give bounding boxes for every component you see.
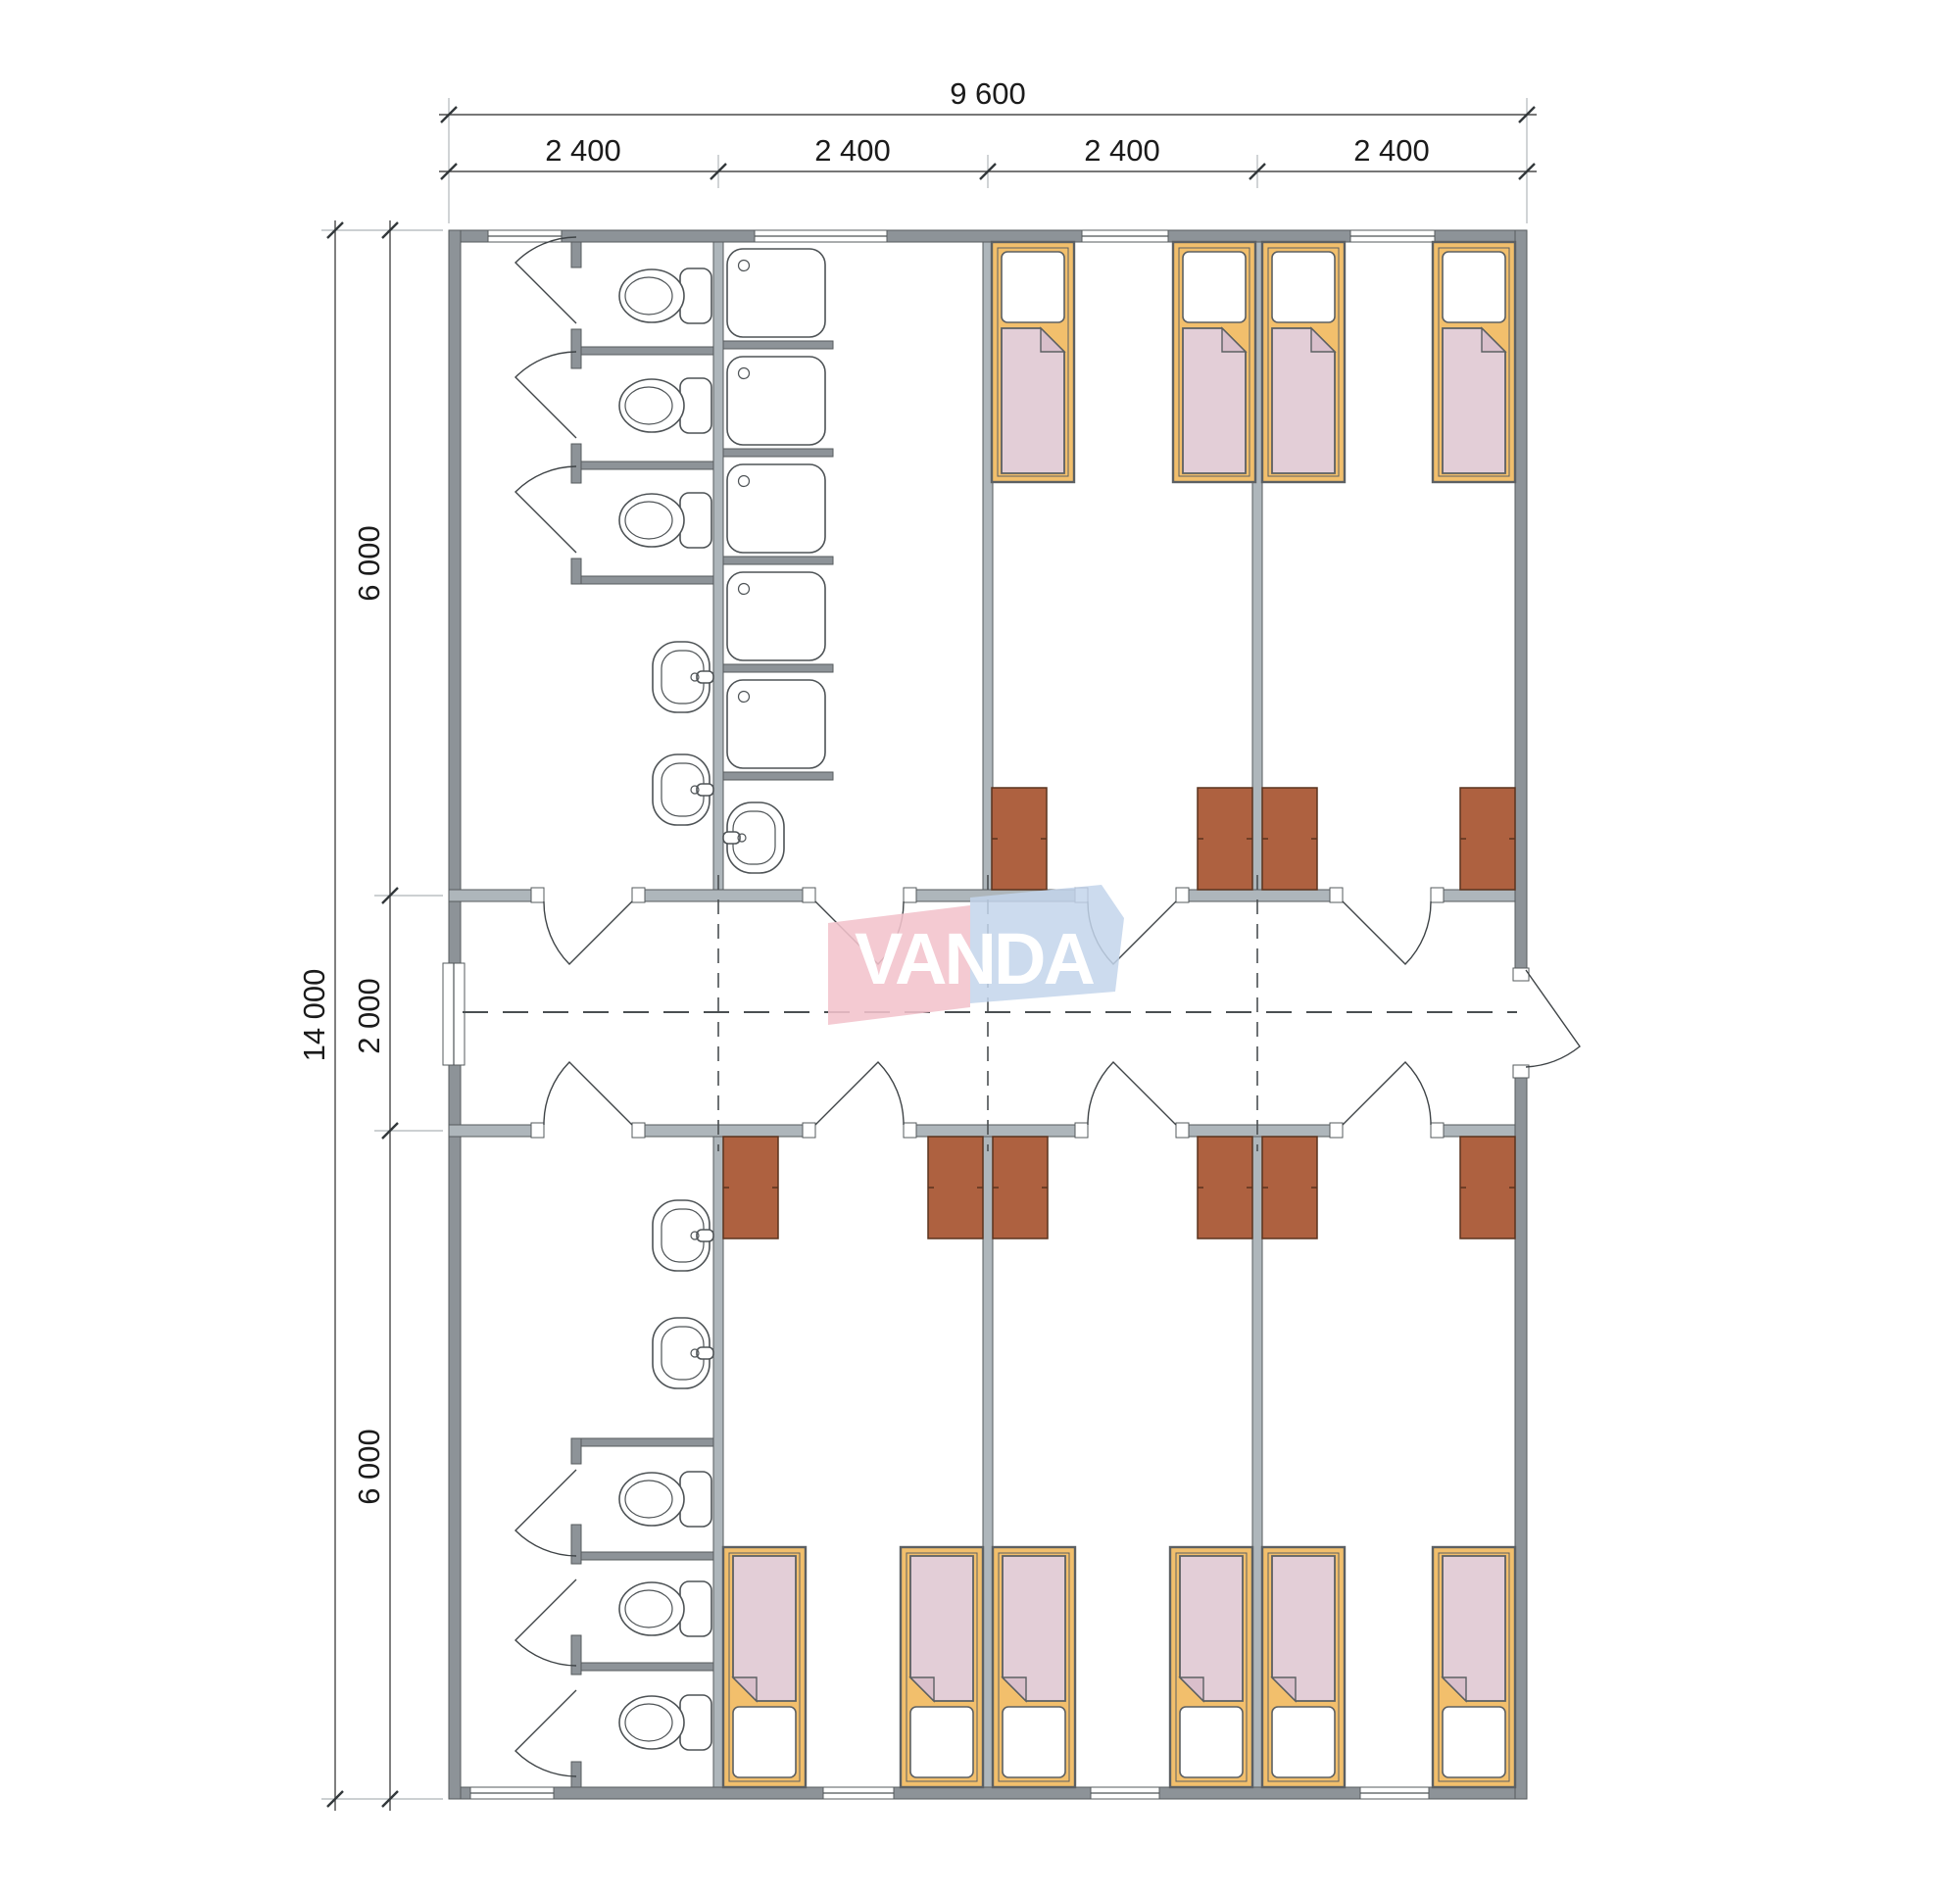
bed-icon xyxy=(992,242,1074,482)
corridor-south-wall xyxy=(449,1125,1515,1137)
toilet-icon xyxy=(619,1695,711,1750)
door-swing-icon xyxy=(1343,901,1431,964)
door-swing-icon xyxy=(1088,1062,1176,1125)
wardrobe-icon xyxy=(1460,788,1515,890)
wardrobe-icon xyxy=(1262,1137,1317,1238)
dim-corridor: 2 000 xyxy=(352,978,386,1054)
vanda-logo: VANDA xyxy=(828,885,1124,1025)
stall-door-icon xyxy=(515,1579,576,1666)
sink-icon xyxy=(653,1318,713,1388)
shower-icon xyxy=(727,357,825,445)
door-swing-icon xyxy=(544,1062,632,1125)
sink-icon xyxy=(723,802,784,873)
sink-icon xyxy=(653,1200,713,1271)
dim-module-4: 2 400 xyxy=(1353,133,1430,168)
floor-plan-page: 9 600 2 400 2 400 2 400 2 400 14 000 6 0… xyxy=(0,0,1960,1894)
bed-icon xyxy=(1433,1547,1515,1787)
wardrobe-icon xyxy=(992,788,1047,890)
wardrobe-icon xyxy=(1198,1137,1252,1238)
bed-icon xyxy=(723,1547,806,1787)
shower-icon xyxy=(727,464,825,553)
wardrobe-icon xyxy=(993,1137,1048,1238)
stall-door-icon xyxy=(515,237,576,323)
dim-total-height: 14 000 xyxy=(297,969,331,1062)
stall-door-icon xyxy=(515,1470,576,1556)
bed-icon xyxy=(1262,1547,1345,1787)
building-walls xyxy=(449,230,1527,1799)
bed-icon xyxy=(1433,242,1515,482)
wardrobe-icon xyxy=(1198,788,1252,890)
shower-icon xyxy=(727,680,825,768)
logo-text: VANDA xyxy=(855,918,1098,999)
dim-module-1: 2 400 xyxy=(545,133,621,168)
bed-icon xyxy=(1170,1547,1252,1787)
bed-icon xyxy=(1262,242,1345,482)
bed-icon xyxy=(901,1547,983,1787)
toilet-icon xyxy=(619,1472,711,1527)
shower-icon xyxy=(727,572,825,660)
dim-row-top: 6 000 xyxy=(352,525,386,602)
entrance-door-icon xyxy=(1526,970,1580,1067)
stall-door-icon xyxy=(515,352,576,438)
sink-icon xyxy=(653,754,713,825)
dim-row-bottom: 6 000 xyxy=(352,1429,386,1505)
toilet-icon xyxy=(619,493,711,548)
dim-total-width: 9 600 xyxy=(950,76,1026,111)
stall-door-icon xyxy=(515,1690,576,1776)
bed-icon xyxy=(993,1547,1075,1787)
dim-module-3: 2 400 xyxy=(1084,133,1160,168)
toilet-icon xyxy=(619,268,711,323)
wardrobe-icon xyxy=(1460,1137,1515,1238)
door-swing-icon xyxy=(1343,1062,1431,1125)
shower-icon xyxy=(727,249,825,337)
dim-module-2: 2 400 xyxy=(814,133,891,168)
door-swing-icon xyxy=(815,1062,904,1125)
toilet-icon xyxy=(619,378,711,433)
sink-icon xyxy=(653,642,713,712)
wardrobe-icon xyxy=(928,1137,983,1238)
toilet-icon xyxy=(619,1581,711,1636)
wardrobe-icon xyxy=(1262,788,1317,890)
wardrobe-icon xyxy=(723,1137,778,1238)
floor-plan-canvas: 9 600 2 400 2 400 2 400 2 400 14 000 6 0… xyxy=(0,0,1960,1894)
stall-door-icon xyxy=(515,466,576,553)
bed-icon xyxy=(1173,242,1255,482)
door-swing-icon xyxy=(544,901,632,964)
